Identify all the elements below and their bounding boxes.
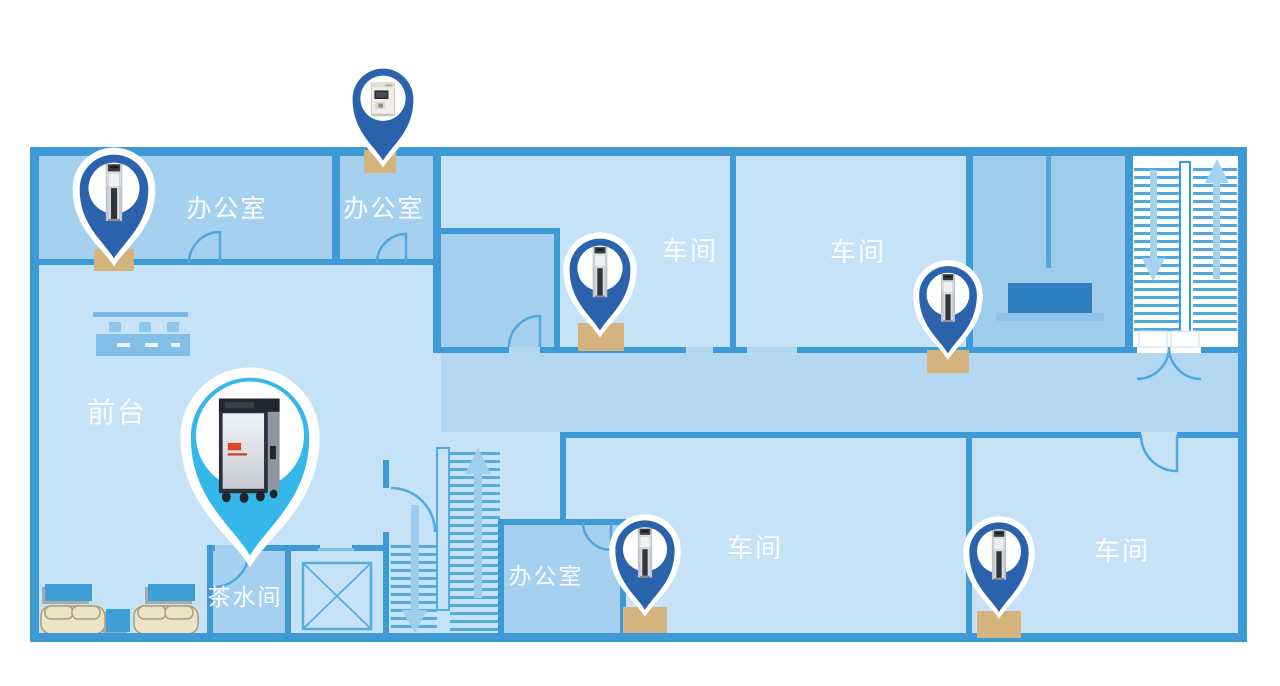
sofa-icon xyxy=(134,606,198,634)
label-workshop-bottom-right: 车间 xyxy=(1094,536,1150,566)
label-office-top-2: 办公室 xyxy=(343,195,424,223)
label-front-desk: 前台 xyxy=(87,397,147,428)
label-workshop-top-mid: 车间 xyxy=(662,236,718,266)
chair-icon xyxy=(109,322,121,332)
coffee-table xyxy=(106,609,130,632)
work-desk xyxy=(1008,283,1092,313)
label-workshop-top-right: 车间 xyxy=(830,237,886,267)
corridor xyxy=(441,353,1238,432)
chair-icon xyxy=(139,322,151,332)
label-office-top-1: 办公室 xyxy=(186,195,267,223)
label-tea-room: 茶水间 xyxy=(208,584,283,610)
label-office-bottom: 办公室 xyxy=(509,563,584,589)
floor-plan-canvas: 办公室 办公室 车间 车间 前台 茶水间 办公室 车间 车间 xyxy=(0,0,1280,686)
side-table xyxy=(45,584,92,601)
room-storage-sub xyxy=(441,234,554,347)
label-workshop-bottom-mid: 车间 xyxy=(727,533,783,563)
side-table xyxy=(148,584,195,601)
chair-icon xyxy=(167,322,179,332)
sofa-icon xyxy=(41,606,105,634)
